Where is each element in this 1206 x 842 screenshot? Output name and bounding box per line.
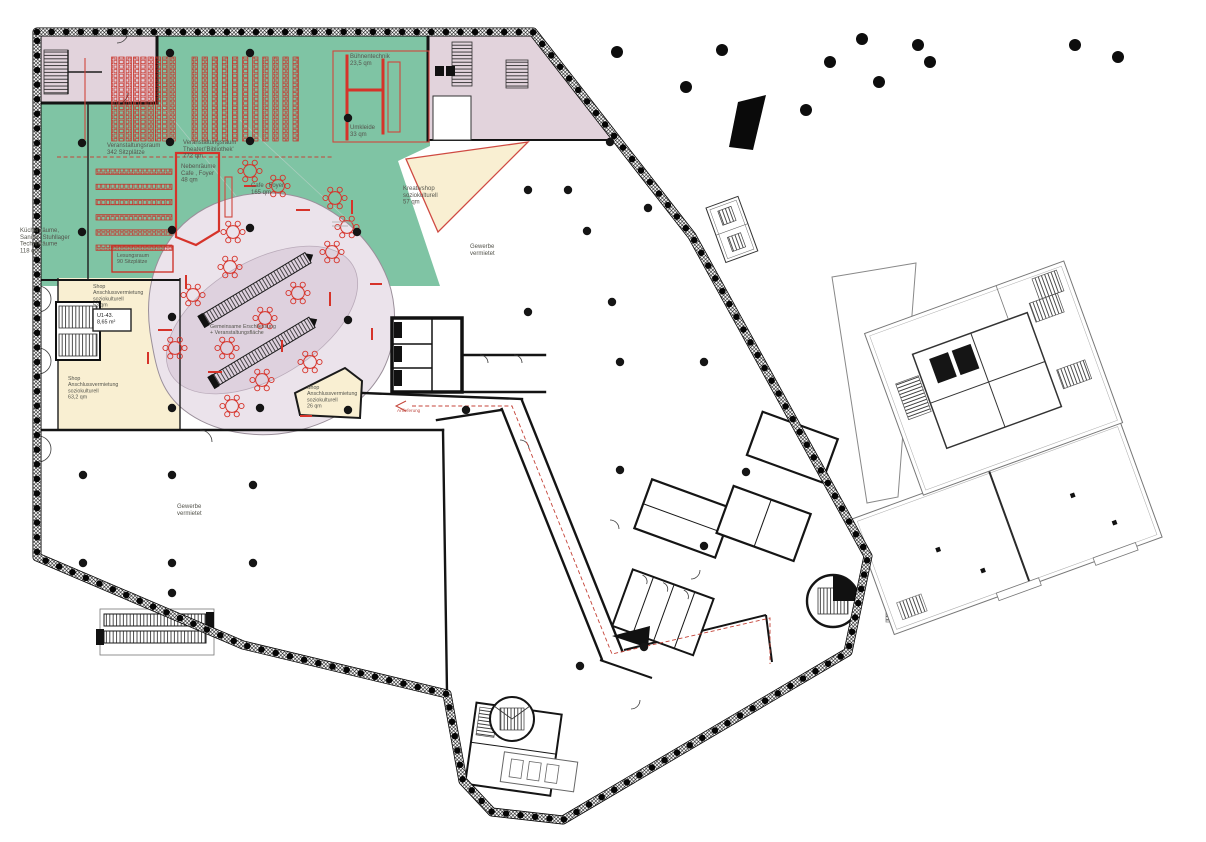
elevator-shaft <box>394 370 402 386</box>
label-gewerbe-left: Gewerbe vermietet <box>177 504 203 517</box>
stair <box>452 42 472 86</box>
stair <box>506 60 528 88</box>
floorplan-canvas: Veranstaltungsraum 342 Sitzplätze Verans… <box>0 0 1206 842</box>
label-gewerbe-right: Gewerbe vermietet <box>470 244 496 257</box>
stair <box>59 306 97 328</box>
stair <box>59 334 97 356</box>
site-canopy-slab <box>729 95 766 150</box>
elevator-core <box>392 318 462 392</box>
floorplan-svg: Veranstaltungsraum 342 Sitzplätze Verans… <box>0 0 1206 842</box>
theater-seating-block-a <box>112 57 176 141</box>
escalator-retail <box>96 609 214 655</box>
stair <box>44 50 68 94</box>
elevator-shaft <box>394 322 402 338</box>
label-lesungsraum: Lesungsraum 90 Sitzplätze <box>117 253 151 265</box>
spiral-stair <box>490 697 534 741</box>
label-u1-43: U1-43. 8,65 m² <box>97 313 115 325</box>
label-anlieferung: Anlieferung <box>397 408 421 413</box>
site-trees <box>611 33 1124 116</box>
site-kiosk <box>706 196 758 262</box>
elevator-shaft <box>394 346 402 362</box>
